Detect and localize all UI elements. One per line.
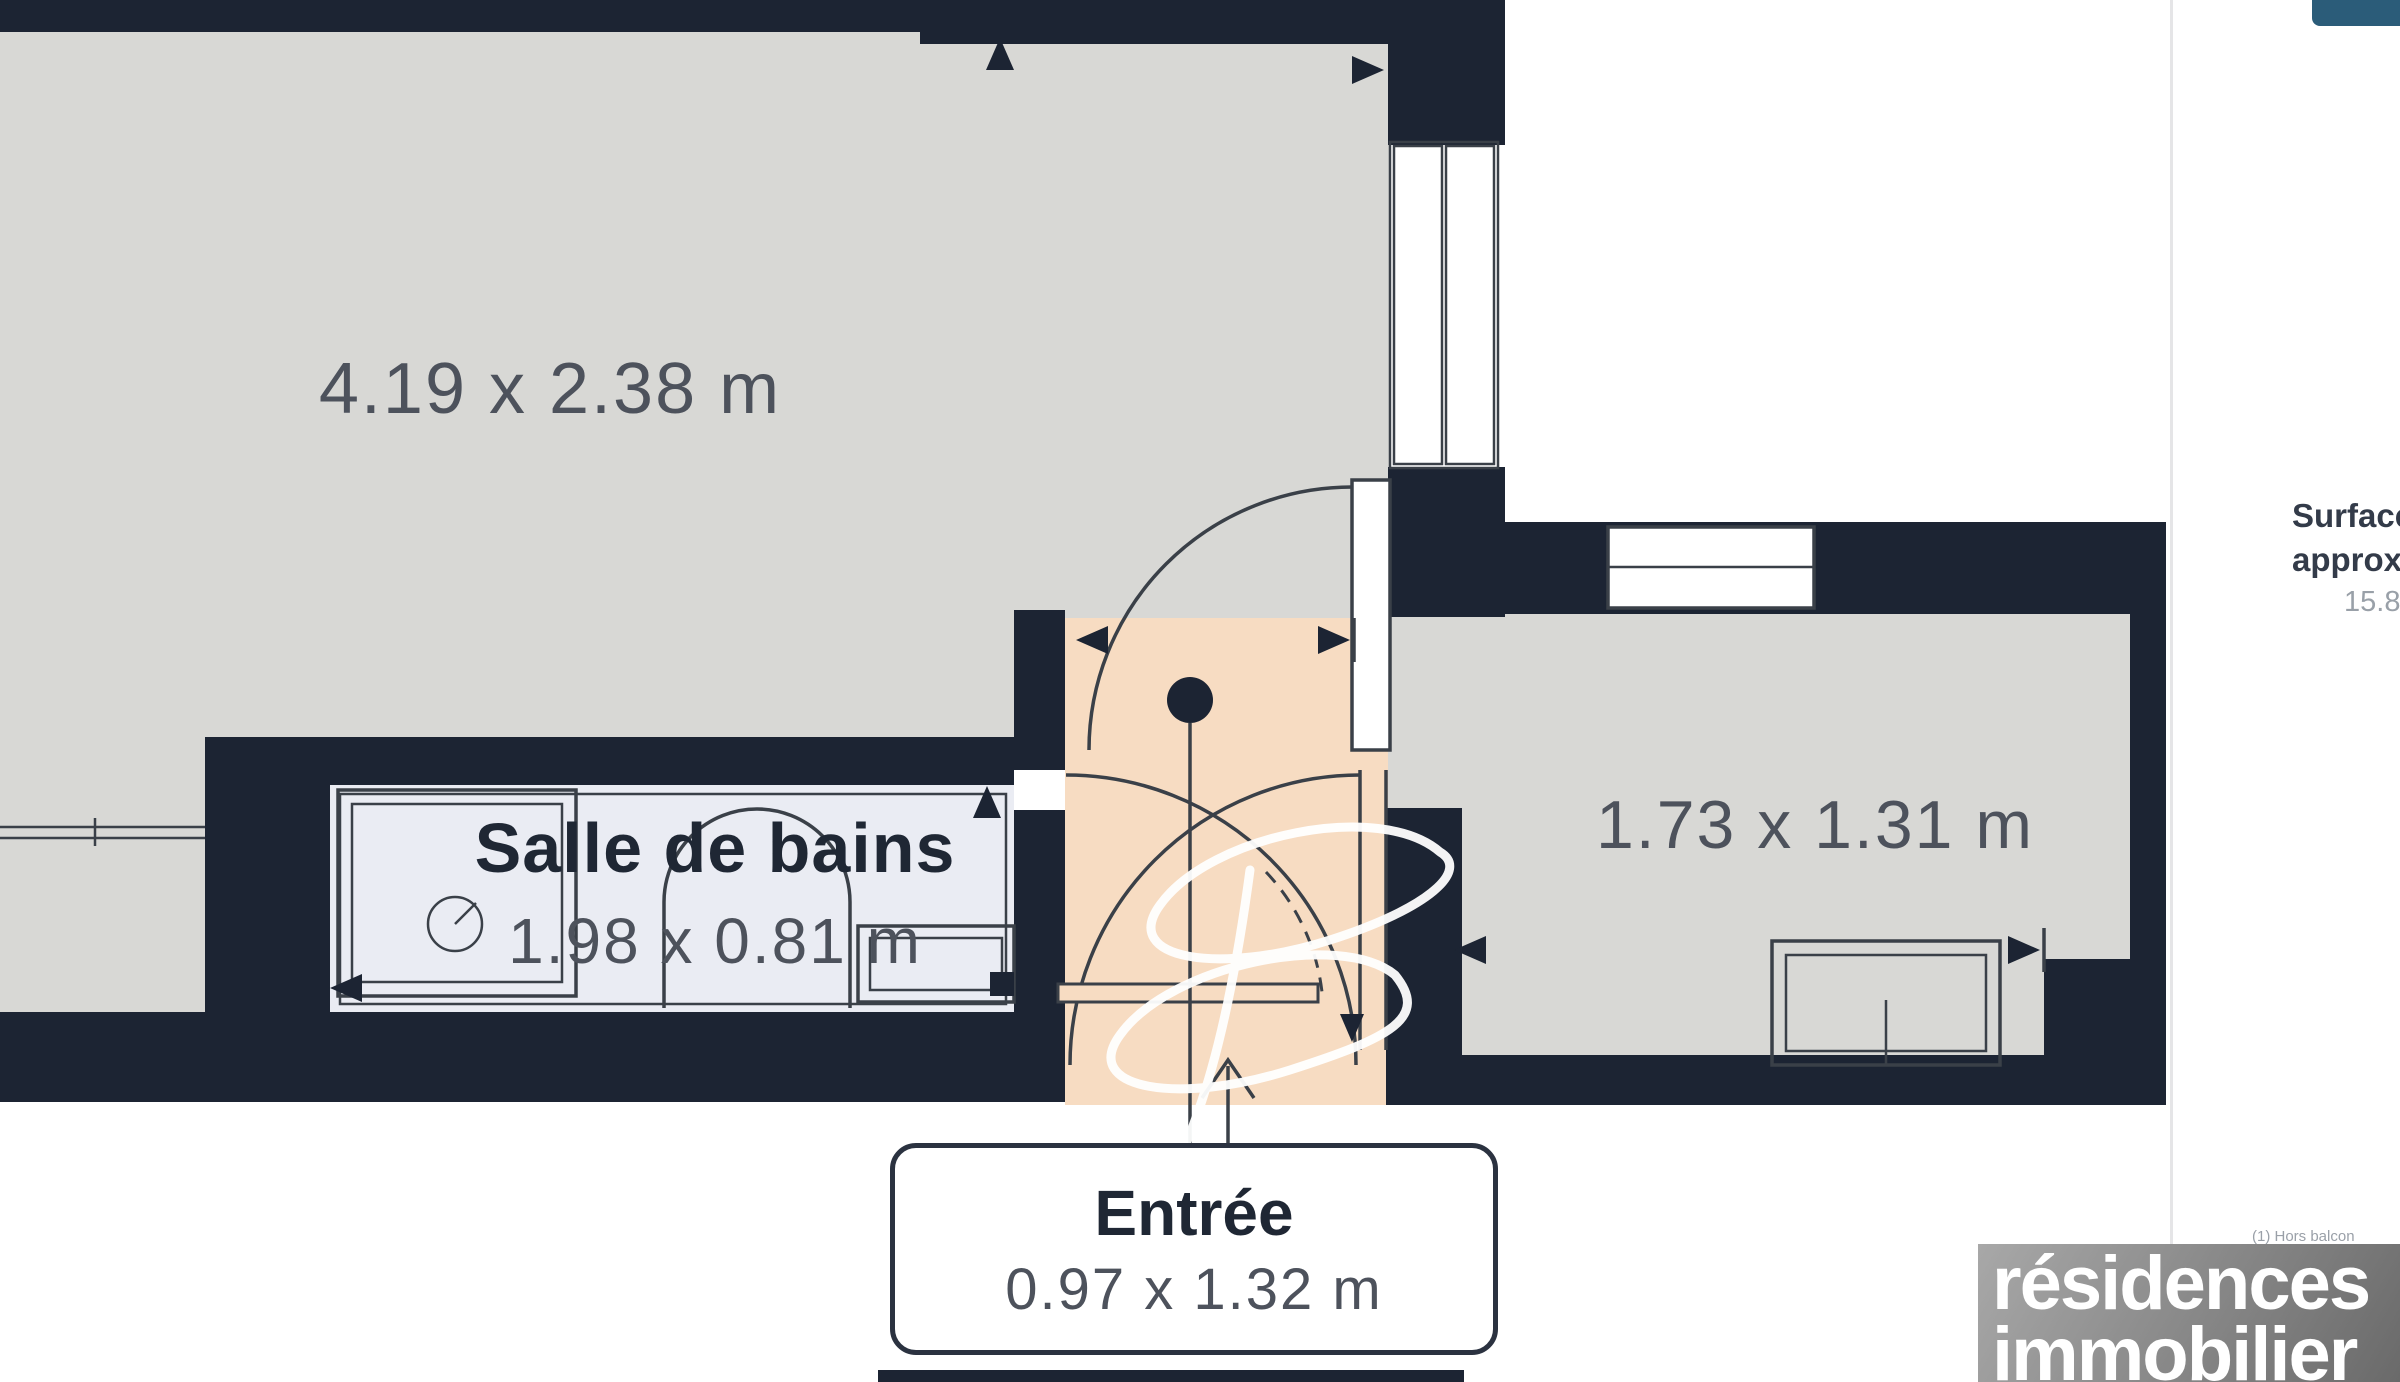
surface-label-line1: Surface totale — [2292, 497, 2400, 535]
wall-bathroom-left — [205, 737, 330, 1012]
main-room-door-leaf — [1352, 480, 1390, 750]
wall-top-thick — [920, 0, 1390, 44]
wall-right-room-bottom — [1415, 1055, 2165, 1105]
ceiling-light-symbol — [1167, 677, 1213, 723]
panel-divider — [2170, 0, 2173, 1250]
surface-footnote: (1) Hors balcon — [2252, 1228, 2355, 1245]
window-main-outer-pane — [1446, 146, 1494, 464]
right-room-dimensions: 1.73 x 1.31 m — [1465, 786, 2165, 864]
entrance-label: Entrée — [1094, 1176, 1293, 1250]
wall-below-window — [1388, 467, 1505, 617]
window-main-frame — [1390, 142, 1498, 468]
wall-entrance-right — [1386, 808, 1462, 1105]
agency-watermark-line2: immobilier — [1992, 1320, 2400, 1382]
entrance-label-box: Entrée 0.97 x 1.32 m — [890, 1143, 1498, 1355]
bathroom-dimensions: 1.98 x 0.81 m — [360, 904, 1070, 978]
wall-bottom-edge-strip — [878, 1370, 1464, 1382]
agency-watermark: résidences immobilier — [1978, 1244, 2400, 1382]
bathroom-door-opening — [1014, 770, 1065, 810]
surface-value: 15.83 m² — [2344, 586, 2400, 619]
entrance-dimensions: 0.97 x 1.32 m — [1005, 1256, 1382, 1323]
entrance-floor — [1065, 618, 1388, 1105]
main-room-dimensions: 4.19 x 2.38 m — [200, 348, 900, 430]
wall-bottom — [0, 1012, 1065, 1102]
main-room-floor-extension — [0, 745, 205, 1012]
wall-right-room-top — [1500, 522, 2165, 614]
wall-top-right-corner — [1388, 0, 1505, 145]
bathroom-label: Salle de bains — [360, 808, 1070, 888]
agency-watermark-line1: résidences — [1992, 1248, 2400, 1320]
floorplan-viewer: 4.19 x 2.38 m Salle de bains 1.98 x 0.81… — [0, 0, 2400, 1382]
surface-label-line2: approximative — [2292, 541, 2400, 579]
window-main-inner-pane — [1394, 146, 1442, 464]
blue-ui-chip[interactable] — [2312, 0, 2400, 26]
